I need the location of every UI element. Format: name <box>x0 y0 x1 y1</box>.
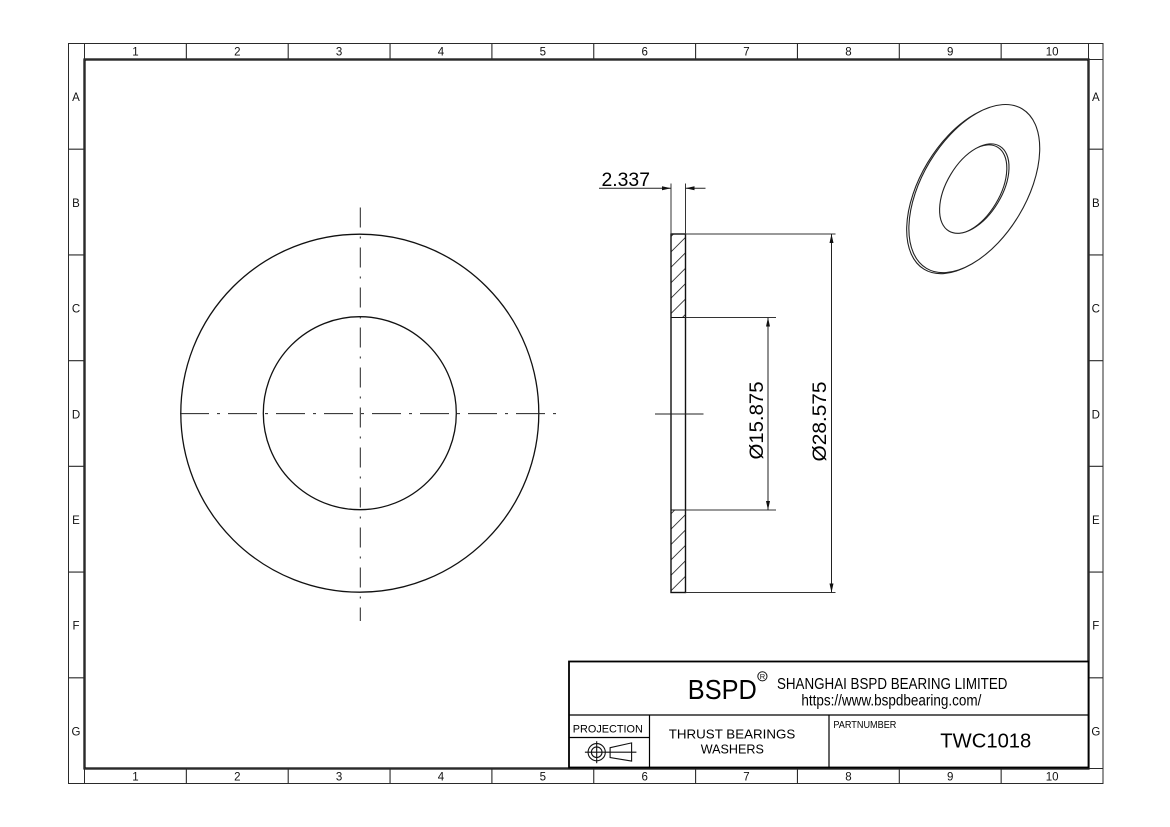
svg-text:E: E <box>72 515 80 527</box>
svg-text:7: 7 <box>743 772 749 784</box>
svg-text:B: B <box>72 198 80 210</box>
svg-text:B: B <box>1092 198 1100 210</box>
svg-text:A: A <box>72 92 80 104</box>
svg-text:F: F <box>1092 621 1099 633</box>
svg-text:1: 1 <box>132 772 138 784</box>
svg-text:BSPD: BSPD <box>688 674 757 705</box>
svg-text:6: 6 <box>641 47 647 59</box>
svg-text:1: 1 <box>132 47 138 59</box>
svg-text:TWC1018: TWC1018 <box>940 731 1031 753</box>
svg-text:5: 5 <box>540 47 546 59</box>
svg-text:SHANGHAI BSPD BEARING LIMITED: SHANGHAI BSPD BEARING LIMITED <box>777 676 1008 693</box>
svg-text:7: 7 <box>743 47 749 59</box>
svg-text:2.337: 2.337 <box>602 169 651 191</box>
svg-text:F: F <box>72 621 79 633</box>
svg-text:2: 2 <box>234 772 240 784</box>
svg-text:D: D <box>72 409 80 421</box>
svg-text:WASHERS: WASHERS <box>701 742 764 757</box>
svg-text:8: 8 <box>845 772 851 784</box>
svg-text:C: C <box>1092 304 1100 316</box>
svg-text:6: 6 <box>641 772 647 784</box>
svg-text:C: C <box>72 304 80 316</box>
svg-text:5: 5 <box>540 772 546 784</box>
svg-text:E: E <box>1092 515 1100 527</box>
svg-text:Ø28.575: Ø28.575 <box>809 381 831 461</box>
svg-text:10: 10 <box>1046 772 1059 784</box>
svg-text:2: 2 <box>234 47 240 59</box>
svg-text:A: A <box>1092 92 1100 104</box>
svg-text:THRUST BEARINGS: THRUST BEARINGS <box>669 727 796 742</box>
svg-text:PARTNUMBER: PARTNUMBER <box>833 720 896 731</box>
svg-text:3: 3 <box>336 47 342 59</box>
svg-text:G: G <box>1091 726 1100 738</box>
svg-text:https://www.bspdbearing.com/: https://www.bspdbearing.com/ <box>801 693 982 710</box>
svg-text:8: 8 <box>845 47 851 59</box>
svg-text:R: R <box>760 672 766 681</box>
svg-text:4: 4 <box>438 772 445 784</box>
svg-text:PROJECTION: PROJECTION <box>573 724 643 736</box>
svg-text:4: 4 <box>438 47 445 59</box>
svg-text:9: 9 <box>947 772 953 784</box>
svg-text:G: G <box>72 726 81 738</box>
svg-text:10: 10 <box>1046 47 1059 59</box>
svg-text:Ø15.875: Ø15.875 <box>746 381 768 459</box>
svg-text:3: 3 <box>336 772 342 784</box>
svg-text:9: 9 <box>947 47 953 59</box>
svg-text:D: D <box>1092 409 1100 421</box>
